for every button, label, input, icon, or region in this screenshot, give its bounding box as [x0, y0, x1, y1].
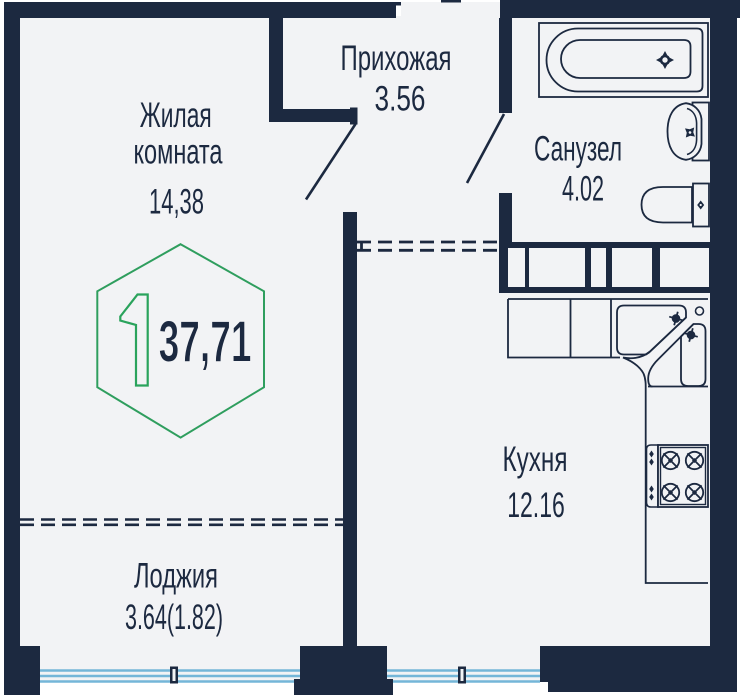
svg-text:комната: комната [134, 133, 223, 172]
svg-text:Лоджия: Лоджия [134, 557, 218, 596]
svg-text:Жилая: Жилая [140, 96, 212, 135]
svg-text:14,38: 14,38 [149, 183, 204, 222]
svg-text:Прихожая: Прихожая [341, 39, 452, 78]
svg-text:Санузел: Санузел [534, 130, 622, 169]
svg-text:37,71: 37,71 [159, 310, 252, 375]
svg-text:4.02: 4.02 [562, 170, 604, 209]
svg-text:3.64(1.82): 3.64(1.82) [125, 598, 223, 637]
svg-text:3.56: 3.56 [375, 80, 426, 119]
svg-text:Кухня: Кухня [503, 440, 568, 479]
svg-text:12.16: 12.16 [507, 486, 565, 525]
